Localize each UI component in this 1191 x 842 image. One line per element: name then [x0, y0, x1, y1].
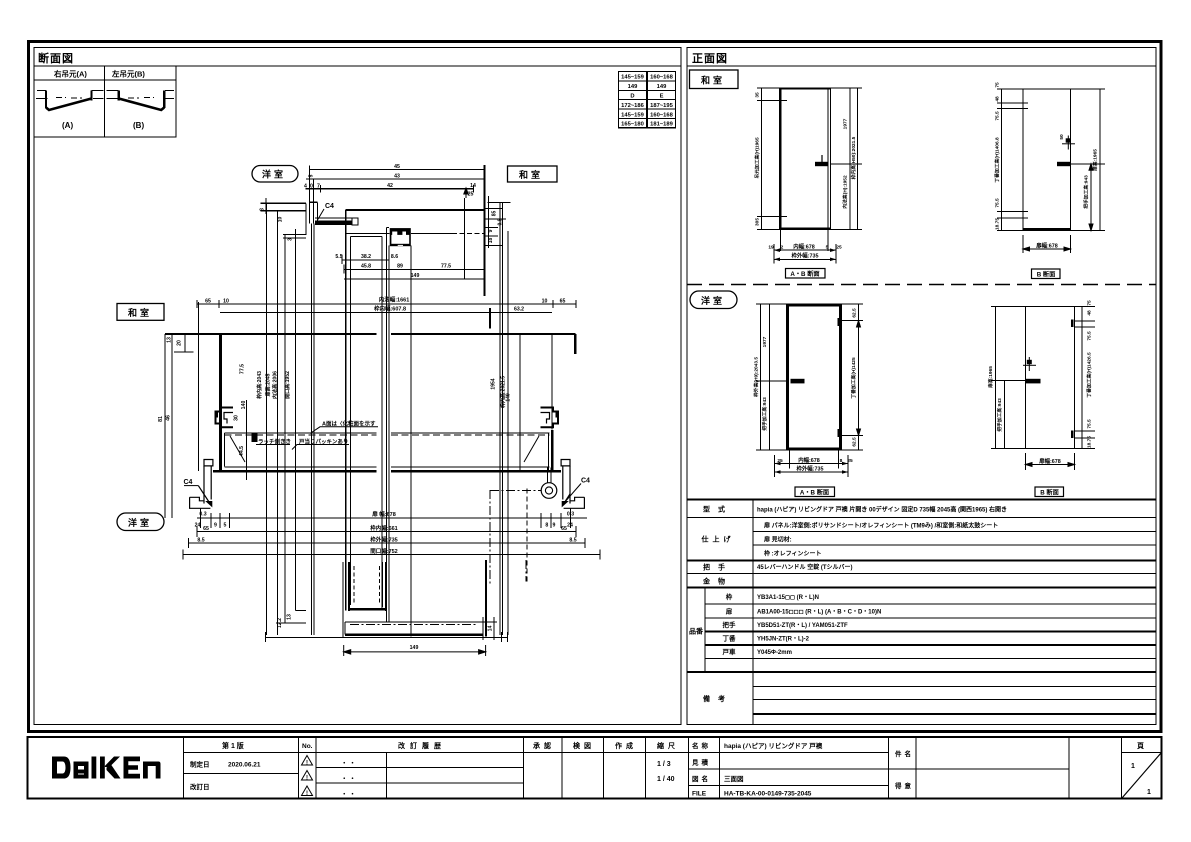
svg-text:1 / 3: 1 / 3 — [657, 761, 671, 768]
svg-text:検図: 検図 — [573, 741, 595, 750]
svg-text:3: 3 — [260, 208, 266, 211]
svg-text:10: 10 — [542, 298, 548, 304]
svg-text:C4: C4 — [581, 478, 590, 485]
svg-text:48: 48 — [1087, 310, 1093, 316]
svg-text:枠外幅:735: 枠外幅:735 — [369, 535, 398, 543]
svg-text:内法高(H):1952: 内法高(H):1952 — [842, 175, 849, 209]
svg-text:件名: 件名 — [895, 749, 914, 758]
svg-text:右吊元(A): 右吊元(A) — [53, 69, 87, 79]
svg-text:三面図: 三面図 — [724, 774, 744, 783]
svg-text:枠内幅:661: 枠内幅:661 — [369, 524, 398, 532]
svg-text:C4: C4 — [325, 203, 334, 210]
svg-text:枠外幅:735: 枠外幅:735 — [797, 465, 824, 473]
svg-text:・ ・: ・ ・ — [341, 760, 356, 767]
svg-text:FILE: FILE — [692, 791, 707, 798]
svg-text:8: 8 — [545, 523, 548, 529]
svg-text:48: 48 — [995, 96, 1001, 102]
svg-text:和室: 和室 — [518, 169, 543, 180]
svg-text:和室: 和室 — [127, 307, 152, 318]
svg-text:305: 305 — [755, 218, 761, 226]
svg-text:7: 7 — [317, 184, 320, 190]
svg-text:43: 43 — [394, 174, 400, 180]
svg-text:46: 46 — [166, 415, 172, 421]
svg-text:63.2: 63.2 — [514, 306, 524, 312]
svg-text:5: 5 — [309, 174, 315, 177]
svg-text:洋室: 洋室 — [701, 295, 725, 306]
svg-text:62.5: 62.5 — [852, 437, 858, 447]
svg-text:作成: 作成 — [615, 741, 637, 750]
svg-text:B 断面: B 断面 — [1040, 489, 1059, 497]
svg-text:149: 149 — [506, 393, 512, 402]
svg-text:14: 14 — [470, 183, 476, 189]
svg-text:30: 30 — [234, 415, 240, 421]
svg-text:3: 3 — [288, 238, 294, 241]
svg-text:20: 20 — [177, 340, 183, 346]
svg-text:!: ! — [306, 760, 308, 766]
svg-text:35: 35 — [755, 92, 761, 98]
svg-text:25: 25 — [836, 244, 842, 250]
svg-text:149: 149 — [410, 645, 419, 651]
svg-text:把手加工高:943: 把手加工高:943 — [761, 397, 768, 431]
svg-text:A・B 断面: A・B 断面 — [800, 489, 829, 497]
svg-text:0.3: 0.3 — [567, 512, 574, 518]
svg-text:正面図: 正面図 — [692, 51, 728, 65]
svg-text:内幅:678: 内幅:678 — [798, 456, 820, 464]
svg-text:枠外高(H9):2043.5: 枠外高(H9):2043.5 — [753, 357, 760, 397]
svg-text:165~180: 165~180 — [621, 122, 644, 128]
svg-text:25: 25 — [777, 458, 783, 464]
svg-text:扉高:1965: 扉高:1965 — [987, 366, 994, 388]
svg-text:149: 149 — [657, 84, 667, 90]
svg-text:(B): (B) — [133, 121, 144, 130]
svg-text:A・B 断面: A・B 断面 — [790, 270, 819, 278]
svg-text:75: 75 — [995, 82, 1001, 88]
svg-text:E: E — [660, 94, 664, 100]
svg-text:No.: No. — [302, 743, 313, 750]
svg-text:HA-TB-KA-00-0149-735-2045: HA-TB-KA-00-0149-735-2045 — [724, 791, 812, 798]
svg-text:81: 81 — [158, 416, 164, 422]
svg-text:備考: 備考 — [703, 694, 733, 703]
svg-text:8.6: 8.6 — [391, 254, 398, 260]
svg-text:1977: 1977 — [843, 118, 849, 129]
svg-text:0.3: 0.3 — [199, 512, 206, 518]
svg-text:左吊元(B): 左吊元(B) — [111, 69, 145, 79]
svg-text:丁番加工高(H)1406.8: 丁番加工高(H)1406.8 — [994, 137, 1001, 183]
svg-text:1954: 1954 — [491, 378, 497, 389]
svg-text:仕上げ: 仕上げ — [701, 535, 735, 544]
svg-text:YB3A1-15◻◻ (R・L)N: YB3A1-15◻◻ (R・L)N — [757, 595, 819, 601]
svg-text:160~168: 160~168 — [650, 112, 674, 118]
svg-text:内法高:2006: 内法高:2006 — [272, 371, 279, 399]
svg-text:扉 パネル:洋室側:ポリサンドシート/オレフィンシート (T: 扉 パネル:洋室側:ポリサンドシート/オレフィンシート (TM9み) /和室側:… — [763, 522, 998, 530]
svg-text:扉高:2045: 扉高:2045 — [265, 373, 272, 397]
svg-text:19: 19 — [768, 244, 774, 250]
svg-text:枠内高:2021.5: 枠内高:2021.5 — [500, 376, 507, 408]
svg-text:89: 89 — [397, 264, 403, 270]
svg-text:内幅:678: 内幅:678 — [793, 243, 815, 251]
svg-text:間口幅:752: 間口幅:752 — [370, 547, 398, 555]
svg-text:・ ・: ・ ・ — [341, 791, 356, 798]
svg-text:洋室: 洋室 — [262, 169, 286, 180]
svg-text:型式: 型式 — [703, 505, 733, 514]
svg-text:枠 :オレフィンシート: 枠 :オレフィンシート — [764, 550, 822, 558]
svg-text:0: 0 — [310, 184, 313, 190]
svg-text:75.5: 75.5 — [1087, 331, 1093, 341]
svg-text:AB1A00-15◻◻◻ (R・L) (A・B・C・D・10: AB1A00-15◻◻◻ (R・L) (A・B・C・D・10)N — [757, 610, 881, 616]
svg-text:断面図: 断面図 — [38, 51, 74, 65]
svg-text:160~168: 160~168 — [650, 75, 674, 81]
svg-text:9: 9 — [553, 523, 556, 529]
svg-text:75.5: 75.5 — [995, 111, 1001, 121]
svg-text:38.2: 38.2 — [361, 254, 371, 260]
svg-text:1: 1 — [1131, 763, 1135, 770]
svg-text:枠内幅:607.8: 枠内幅:607.8 — [373, 304, 406, 312]
svg-text:50: 50 — [1059, 134, 1065, 140]
svg-text:149: 149 — [411, 273, 420, 279]
svg-text:42: 42 — [387, 183, 393, 189]
svg-text:65: 65 — [205, 298, 211, 304]
svg-text:10: 10 — [278, 217, 284, 223]
svg-text:0.8: 0.8 — [498, 218, 504, 225]
svg-text:13: 13 — [287, 614, 293, 620]
svg-text:5: 5 — [224, 523, 227, 529]
svg-text:丁番加工高(H)1425: 丁番加工高(H)1425 — [850, 357, 857, 399]
svg-text:62.5: 62.5 — [852, 308, 858, 318]
svg-text:枠内高:2043: 枠内高:2043 — [256, 371, 263, 399]
svg-text:改訂履歴: 改訂履歴 — [398, 741, 446, 750]
svg-text:YB5D51-ZT(R・L) / YAM051-ZTF: YB5D51-ZT(R・L) / YAM051-ZTF — [757, 623, 848, 629]
svg-text:24: 24 — [195, 523, 201, 529]
svg-text:改訂日: 改訂日 — [190, 782, 210, 791]
svg-text:扉高:1965: 扉高:1965 — [1092, 149, 1099, 171]
svg-text:45: 45 — [394, 164, 400, 170]
svg-text:1: 1 — [1147, 789, 1151, 796]
svg-text:扉 幅:678: 扉 幅:678 — [371, 510, 396, 518]
svg-text:洋室: 洋室 — [128, 517, 152, 528]
svg-text:把手加工高:943: 把手加工高:943 — [996, 398, 1003, 432]
svg-text:戸車: 戸車 — [723, 647, 737, 656]
svg-text:1 / 40: 1 / 40 — [657, 776, 675, 783]
svg-text:2: 2 — [781, 244, 784, 250]
svg-text:枠: 枠 — [726, 592, 733, 601]
svg-text:25: 25 — [847, 458, 853, 464]
svg-text:枠内高(H50):2021.5: 枠内高(H50):2021.5 — [850, 136, 857, 179]
svg-text:把手: 把手 — [703, 563, 733, 572]
svg-text:65: 65 — [560, 298, 566, 304]
svg-text:25: 25 — [468, 192, 474, 198]
svg-text:D: D — [630, 94, 634, 100]
svg-text:!: ! — [306, 775, 308, 781]
svg-text:得意: 得意 — [894, 781, 914, 790]
svg-text:9: 9 — [488, 229, 494, 232]
svg-text:C4: C4 — [184, 479, 193, 486]
svg-text:内法幅:1661: 内法幅:1661 — [379, 296, 410, 304]
svg-text:65: 65 — [203, 526, 209, 532]
svg-text:8.5: 8.5 — [569, 537, 576, 543]
svg-text:9: 9 — [214, 523, 217, 529]
svg-text:見積: 見積 — [691, 758, 711, 767]
svg-text:44.5: 44.5 — [239, 446, 245, 456]
svg-text:2020.06.21: 2020.06.21 — [228, 762, 261, 769]
svg-text:hapia (ハピア) リビングドア 戸襖: hapia (ハピア) リビングドア 戸襖 — [724, 741, 823, 750]
svg-text:5: 5 — [826, 244, 829, 250]
svg-text:把手加工高:943: 把手加工高:943 — [1083, 175, 1090, 209]
svg-text:75: 75 — [1087, 300, 1093, 306]
svg-text:金物: 金物 — [702, 577, 733, 586]
svg-text:13: 13 — [167, 337, 173, 343]
svg-text:77.5: 77.5 — [240, 364, 246, 374]
svg-text:18: 18 — [488, 238, 494, 244]
svg-text:丁番加工高(H)1426.5: 丁番加工高(H)1426.5 — [1086, 352, 1093, 398]
svg-text:品番: 品番 — [689, 627, 704, 636]
svg-text:1977: 1977 — [762, 336, 768, 347]
svg-text:縮尺: 縮尺 — [657, 741, 679, 750]
svg-text:扉: 扉 — [726, 607, 733, 616]
svg-text:・ ・: ・ ・ — [341, 776, 356, 783]
svg-text:扉幅:678: 扉幅:678 — [1039, 457, 1061, 465]
svg-text:5.5: 5.5 — [335, 254, 342, 260]
svg-text:18.75: 18.75 — [1087, 436, 1093, 448]
svg-text:24: 24 — [567, 523, 573, 529]
svg-text:図名: 図名 — [692, 774, 711, 783]
svg-text:扉幅:678: 扉幅:678 — [1036, 241, 1058, 249]
svg-text:65: 65 — [561, 526, 567, 532]
svg-text:18.75: 18.75 — [995, 218, 1001, 230]
svg-text:(A): (A) — [62, 121, 73, 130]
svg-text:YH5JN-ZT(R・L)-2: YH5JN-ZT(R・L)-2 — [757, 637, 810, 643]
svg-text:45.8: 45.8 — [361, 264, 371, 270]
svg-text:制定日: 制定日 — [190, 760, 210, 769]
svg-text:!: ! — [306, 791, 308, 797]
svg-text:14: 14 — [488, 626, 494, 632]
svg-text:4: 4 — [304, 184, 307, 190]
svg-text:扉 見切材:: 扉 見切材: — [763, 536, 792, 544]
svg-text:10: 10 — [223, 298, 229, 304]
svg-text:丁番: 丁番 — [723, 634, 737, 643]
svg-text:75.5: 75.5 — [1087, 419, 1093, 429]
svg-text:枠外幅:735: 枠外幅:735 — [792, 252, 819, 260]
svg-text:85: 85 — [492, 211, 498, 217]
svg-text:頁: 頁 — [1137, 742, 1144, 750]
svg-text:承認: 承認 — [533, 741, 555, 750]
svg-text:把手: 把手 — [723, 620, 737, 629]
svg-text:hapia (ハピア) リビングドア 戸襖 片開き 00: hapia (ハピア) リビングドア 戸襖 片開き 00デザイン 固定D 735… — [757, 506, 1007, 514]
svg-text:第 1 版: 第 1 版 — [222, 741, 244, 750]
svg-text:12.2: 12.2 — [277, 618, 283, 628]
svg-text:75.5: 75.5 — [995, 198, 1001, 208]
svg-text:名称: 名称 — [692, 741, 711, 750]
svg-text:8.5: 8.5 — [197, 537, 204, 543]
svg-text:Y045Φ-2mm: Y045Φ-2mm — [757, 650, 792, 656]
svg-text:149: 149 — [628, 84, 638, 90]
svg-text:145~159: 145~159 — [621, 112, 645, 118]
svg-text:172~186: 172~186 — [621, 103, 645, 109]
svg-text:開口高:1952: 開口高:1952 — [284, 371, 291, 399]
svg-text:145~159: 145~159 — [621, 75, 645, 81]
svg-text:181~189: 181~189 — [650, 122, 674, 128]
svg-text:B 断面: B 断面 — [1037, 271, 1056, 279]
svg-text:187~195: 187~195 — [650, 103, 674, 109]
svg-text:8: 8 — [840, 458, 843, 464]
svg-text:140: 140 — [241, 401, 247, 410]
svg-text:和室: 和室 — [700, 75, 725, 86]
svg-text:77.5: 77.5 — [441, 264, 451, 270]
svg-text:吊元加工高(H)1965: 吊元加工高(H)1965 — [754, 137, 761, 179]
svg-text:45レバーハンドル 空錠 (Tシルバー): 45レバーハンドル 空錠 (Tシルバー) — [757, 563, 853, 571]
